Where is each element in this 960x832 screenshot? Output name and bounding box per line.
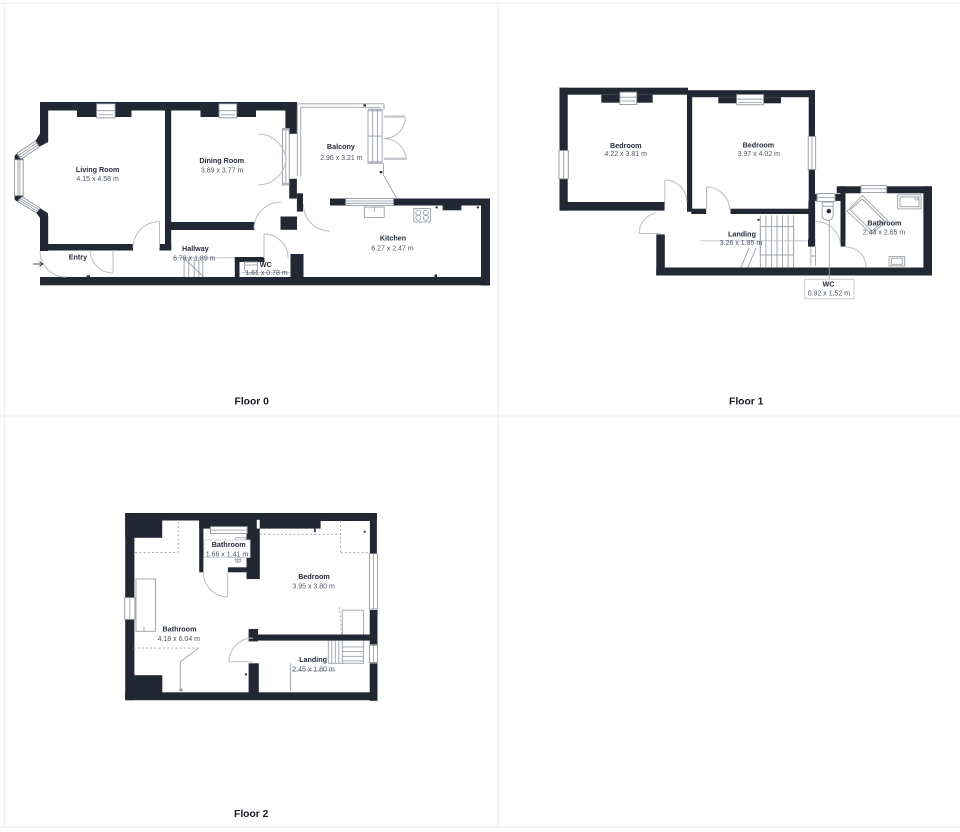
svg-text:6.78 x 1.89 m: 6.78 x 1.89 m bbox=[173, 255, 216, 262]
svg-text:WC: WC bbox=[260, 260, 272, 269]
svg-text:Living Room: Living Room bbox=[76, 165, 120, 174]
svg-text:3.97 x 4.02 m: 3.97 x 4.02 m bbox=[738, 151, 781, 158]
svg-text:Bedroom: Bedroom bbox=[610, 141, 642, 150]
svg-text:Bathroom: Bathroom bbox=[212, 540, 246, 549]
svg-text:Floor 1: Floor 1 bbox=[729, 397, 764, 408]
svg-text:0.92 x 1.52 m: 0.92 x 1.52 m bbox=[808, 291, 851, 298]
svg-text:4.15 x 4.58 m: 4.15 x 4.58 m bbox=[76, 176, 119, 183]
svg-text:Bathroom: Bathroom bbox=[867, 218, 901, 227]
svg-text:Dining Room: Dining Room bbox=[199, 156, 244, 165]
svg-text:Balcony: Balcony bbox=[327, 142, 355, 151]
svg-text:Bedroom: Bedroom bbox=[743, 141, 775, 150]
svg-text:2.45 x 1.80 m: 2.45 x 1.80 m bbox=[292, 667, 335, 674]
svg-text:4.18 x 6.04 m: 4.18 x 6.04 m bbox=[158, 636, 201, 643]
svg-text:6.27 x 2.47 m: 6.27 x 2.47 m bbox=[371, 245, 414, 252]
svg-text:1.66 x 1.41 m: 1.66 x 1.41 m bbox=[206, 551, 249, 558]
svg-text:Bedroom: Bedroom bbox=[298, 572, 330, 581]
svg-text:2.44 x 2.65 m: 2.44 x 2.65 m bbox=[863, 230, 906, 237]
svg-text:Hallway: Hallway bbox=[182, 244, 209, 253]
svg-text:3.89 x 3.77 m: 3.89 x 3.77 m bbox=[201, 167, 244, 174]
svg-text:Kitchen: Kitchen bbox=[380, 233, 406, 242]
svg-text:2.96 x 3.21 m: 2.96 x 3.21 m bbox=[320, 155, 363, 162]
svg-text:1.61 x 0.78 m: 1.61 x 0.78 m bbox=[245, 270, 288, 277]
svg-text:Floor 2: Floor 2 bbox=[234, 809, 269, 820]
svg-text:4.22 x 3.81 m: 4.22 x 3.81 m bbox=[604, 151, 647, 158]
svg-text:Landing: Landing bbox=[299, 655, 327, 664]
svg-text:Landing: Landing bbox=[728, 230, 756, 239]
svg-text:Bathroom: Bathroom bbox=[163, 624, 197, 633]
svg-text:WC: WC bbox=[823, 279, 835, 288]
svg-text:3.95 x 3.80 m: 3.95 x 3.80 m bbox=[292, 583, 335, 590]
svg-text:Entry: Entry bbox=[69, 253, 87, 262]
svg-text:Floor 0: Floor 0 bbox=[235, 396, 270, 407]
svg-text:3.26 x 1.85 m: 3.26 x 1.85 m bbox=[720, 240, 763, 247]
